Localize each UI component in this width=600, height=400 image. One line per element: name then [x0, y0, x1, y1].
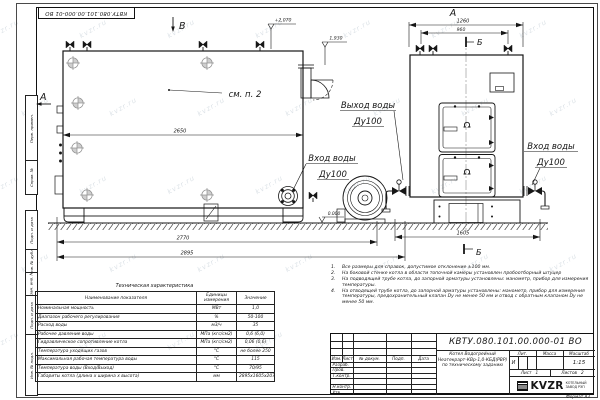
inlet-pipe-valve: [524, 180, 549, 209]
spec-value: 0,6 (6,0): [237, 330, 275, 339]
view-label-b: В: [179, 21, 186, 32]
spec-units: °С: [197, 364, 237, 373]
spec-value: 115: [237, 356, 275, 365]
spec-units: °С: [197, 347, 237, 356]
valve-icon: [83, 41, 91, 51]
note-number: 2.: [331, 271, 342, 276]
ash-base: [410, 197, 523, 223]
dim-1605: 1605: [457, 231, 470, 237]
blower-fan: [337, 176, 387, 223]
inlet-label-rear-line1: Вход воды: [527, 142, 575, 152]
note-text: На отводящей трубе котла, до запорной ар…: [342, 289, 592, 305]
dim-2770: 2770: [177, 236, 190, 242]
title-block: Изм. Лист № докум. Подп. Дата Разраб. Пр…: [330, 333, 594, 394]
view-marks: [36, 17, 175, 106]
spec-name: Рабочее давление воды: [36, 330, 197, 339]
spec-name: Диапазон рабочего регулирования: [36, 313, 197, 322]
section-marks: [464, 37, 474, 254]
spec-row: Диапазон рабочего регулирования%50-100: [36, 313, 275, 322]
note-item: 3.На подводящей трубе котла, до запорной…: [331, 277, 592, 288]
spec-row: Номинальная мощностьМВт1,0: [36, 305, 275, 314]
note-text: Все размеры для справок, допустимое откл…: [342, 265, 592, 270]
spec-col-value: Значение: [237, 292, 275, 305]
upper-door: [439, 103, 495, 152]
sight-box: [490, 73, 514, 92]
col-podp: Подп.: [386, 355, 411, 362]
inlet-flange: [279, 187, 298, 206]
sheet-label: Лист: [521, 370, 532, 375]
elevation-flue: 1,930: [329, 36, 342, 42]
outlet-pipe-valve: [382, 180, 409, 212]
inlet-label-front-line2: Ду100: [318, 170, 347, 180]
spec-name: Расход воды: [36, 322, 197, 331]
sheet-value: 1: [535, 370, 538, 375]
spec-value: 1,0: [237, 305, 275, 314]
spec-value: 70/95: [237, 364, 275, 373]
spec-value: 0,06 (0,6): [237, 339, 275, 348]
spec-col-name: Наименование показателя: [36, 292, 197, 305]
valve-icon: [429, 45, 437, 55]
logo-subtitle: КОТЕЛЬНЫЙ ЗАВОД РЭП: [566, 382, 587, 389]
side-fittings: [55, 106, 63, 194]
product-name: Котел Водогрейный Неатекрарт-КВр-1,0-КБД…: [436, 350, 509, 395]
spec-name: Номинальная мощность: [36, 305, 197, 314]
spec-col-units: Единицы измерения: [197, 292, 237, 305]
spec-units: м3/ч: [197, 322, 237, 331]
elevation-zero: 0.000: [328, 211, 341, 217]
dim-960: 960: [457, 27, 466, 33]
doc-number: КВТУ.080.101.00.000-01 ВО: [436, 334, 595, 350]
note-item: 4.На отводящей трубе котла, до запорной …: [331, 289, 592, 305]
note-item: 1.Все размеры для справок, допустимое от…: [331, 265, 592, 270]
outlet-label-line2: Ду100: [353, 117, 382, 127]
sheets-value: 2: [581, 370, 584, 375]
spec-units: %: [197, 313, 237, 322]
section-label-b-top: Б: [477, 38, 483, 47]
spec-table: Техническая характеристика Наименование …: [35, 282, 274, 382]
inlet-label-rear-line2: Ду100: [536, 158, 565, 168]
logo-flag-icon: [517, 381, 528, 391]
spec-units: МПа (кгс/см2): [197, 339, 237, 348]
view-label-a-rear: А: [449, 8, 457, 19]
spec-row: Гидравлическое сопротивление котлаМПа (к…: [36, 339, 275, 348]
skid-base: [64, 204, 303, 222]
outlet-label-line1: Выход воды: [341, 101, 395, 111]
spec-row: Температура уходящих газов°Сне более 250: [36, 347, 275, 356]
notes: 1.Все размеры для справок, допустимое от…: [331, 265, 592, 306]
lifting-lug-icons: [66, 56, 214, 202]
sheets-cell: Листов 2: [550, 369, 595, 376]
note-number: 1.: [331, 265, 342, 270]
inlet-label-front-line1: Вход воды: [308, 154, 356, 164]
logo-text: KVZR: [530, 380, 563, 392]
sig-utv: Утв.: [331, 389, 355, 395]
valve-icon: [309, 192, 317, 202]
spec-name: Габариты котла (длина х ширина х высота): [36, 373, 197, 382]
spec-name: Температура воды (Вход/Выход): [36, 364, 197, 373]
mass-label: Масса: [536, 350, 563, 356]
lit-value: И: [509, 356, 518, 369]
spec-value: 2895х1605х2070: [237, 373, 275, 382]
spec-value: 50-100: [237, 313, 275, 322]
product-name-line3: по техническому заданию: [436, 363, 509, 369]
spec-value: 35: [237, 322, 275, 331]
valve-icon: [199, 41, 207, 51]
col-data: Дата: [411, 355, 436, 362]
sheets-label: Листов: [561, 370, 577, 375]
section-label-a-front: А: [39, 92, 47, 103]
drawing-sheet: kvzr.rukvzr.rukvzr.rukvzr.rukvzr.rukvzr.…: [0, 0, 600, 400]
valve-icon: [416, 45, 424, 55]
scale-value: 1:15: [563, 356, 595, 369]
valve-icon: [504, 45, 512, 55]
note-item: 2.На боковой стенке котла в области топо…: [331, 271, 592, 276]
spec-units: МВт: [197, 305, 237, 314]
company-logo: KVZR КОТЕЛЬНЫЙ ЗАВОД РЭП: [509, 376, 595, 395]
spec-name: Гидравлическое сопротивление котла: [36, 339, 197, 348]
valve-icon: [256, 41, 264, 51]
col-docnum: № докум.: [353, 355, 386, 362]
valve-icon: [66, 41, 74, 51]
spec-row: Габариты котла (длина х ширина х высота)…: [36, 373, 275, 382]
front-view: [36, 17, 548, 261]
ground-hatch: [48, 224, 548, 231]
elevation-marks: [268, 24, 347, 223]
section-label-b-bottom: Б: [476, 248, 482, 257]
sheet-cell: Лист 1: [509, 369, 550, 376]
spec-units: °С: [197, 356, 237, 365]
spec-value: не более 250: [237, 347, 275, 356]
note-number: 4.: [331, 289, 342, 305]
rear-label-underlines: [524, 152, 578, 186]
spec-units: мм: [197, 373, 237, 382]
spec-units: МПа (кгс/см2): [197, 330, 237, 339]
note-number: 3.: [331, 277, 342, 288]
spec-name: Температура уходящих газов: [36, 347, 197, 356]
dim-2650: 2650: [174, 129, 187, 135]
spec-name: Максимальная рабочая температура воды: [36, 356, 197, 365]
spec-row: Температура воды (Вход/Выход)°С70/95: [36, 364, 275, 373]
spec-row: Рабочее давление водыМПа (кгс/см2)0,6 (6…: [36, 330, 275, 339]
spec-table-title: Техническая характеристика: [35, 282, 274, 291]
see-note-callout: см. п. 2: [229, 90, 262, 100]
dim-1260: 1260: [457, 19, 470, 25]
format-note: Формат А3: [470, 394, 590, 399]
spec-row: Расход водым3/ч35: [36, 322, 275, 331]
spec-row: Максимальная рабочая температура воды°С1…: [36, 356, 275, 365]
rear-view: [382, 22, 578, 254]
lower-door: [439, 155, 495, 198]
note-text: На боковой стенке котла в области топочн…: [342, 271, 592, 276]
note-text: На подводящей трубе котла, до запорной а…: [342, 277, 592, 288]
elevation-top: +2,070: [274, 18, 291, 24]
logo-sub-line2: ЗАВОД РЭП: [566, 386, 587, 390]
dim-2895: 2895: [181, 251, 194, 257]
